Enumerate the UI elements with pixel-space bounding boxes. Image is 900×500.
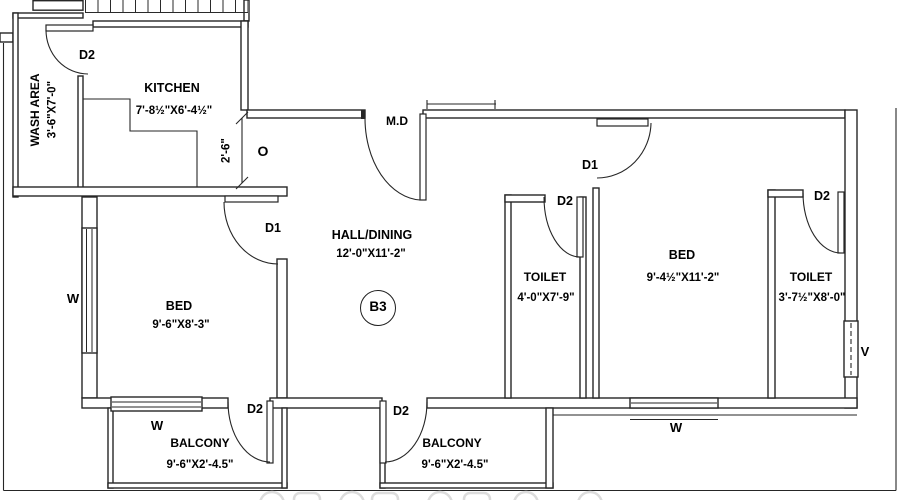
top-left-box — [33, 1, 83, 11]
window-balcony-left — [111, 397, 202, 411]
balcony-right-dims: 9'-6"X2'-4.5" — [375, 459, 535, 472]
watermark-shape — [260, 492, 284, 500]
watermark-shape — [294, 493, 320, 500]
wash-area-dims: 3'-6"X7'-0" — [46, 50, 59, 170]
bed-left-dims: 9'-6"X8'-3" — [101, 319, 261, 332]
main-door-label: M.D — [377, 115, 417, 129]
window-marker-bed-left: W — [58, 292, 88, 307]
door-label-d2-balcony-left: D2 — [240, 402, 270, 416]
door-leaf-bed-left — [225, 196, 278, 202]
watermark-shape — [514, 492, 538, 500]
bed-right-dims: 9'-4½"X11'-2" — [603, 272, 763, 285]
balcony-left-dims: 9'-6"X2'-4.5" — [120, 459, 280, 472]
door-jamb — [361, 110, 365, 119]
floor-plan: WASH AREA 3'-6"X7'-0" KITCHEN 7'-8½"X6'-… — [0, 0, 900, 500]
ventilator-marker: V — [852, 345, 878, 360]
wash-area-label: WASH AREA — [29, 50, 43, 170]
bed-right-label: BED — [622, 248, 742, 262]
wall-segment — [505, 195, 545, 202]
wall-segment — [78, 76, 83, 191]
door-label-d1-bed-right: D1 — [575, 158, 605, 172]
watermark-strip — [260, 492, 602, 500]
stair-hatch-band — [85, 0, 248, 13]
wall-segment — [108, 408, 113, 488]
watermark-shape — [464, 493, 490, 500]
door-arc-main — [365, 118, 420, 200]
window-marker-balcony-left: W — [142, 419, 172, 434]
balcony-left-label: BALCONY — [140, 437, 260, 451]
door-arc-bed-right — [597, 123, 651, 178]
door-label-d1-bed-left: D1 — [258, 221, 288, 235]
balcony-right-label: BALCONY — [392, 437, 512, 451]
property-boundary — [0, 0, 896, 491]
door-label-d2-toilet-right: D2 — [807, 189, 837, 203]
wall-segment — [13, 13, 18, 197]
watermark-shape — [428, 492, 452, 500]
wall-segment — [270, 398, 382, 408]
toilet-mid-dims: 4'-0"X7'-9" — [476, 292, 616, 305]
hall-label: HALL/DINING — [292, 228, 452, 242]
bed-left-label: BED — [119, 299, 239, 313]
wall-segment — [546, 408, 553, 488]
wall-segment — [108, 483, 287, 488]
toilet-mid-label: TOILET — [485, 271, 605, 285]
boundary-stub — [0, 33, 13, 42]
window-bed-left — [82, 228, 97, 353]
door-label-d2-toilet-mid: D2 — [550, 194, 580, 208]
door-leaf-wash — [46, 25, 93, 31]
opening-marker: O — [250, 143, 276, 159]
door-label-d2-wash: D2 — [72, 48, 102, 62]
door-leaf-toilet-right — [838, 192, 844, 253]
toilet-right-dims: 3'-7½"X8'-0" — [742, 292, 882, 305]
wall-segment — [380, 483, 553, 488]
hall-dims: 12'-0"X11'-2" — [291, 248, 451, 261]
watermark-shape — [340, 492, 364, 500]
kitchen-label: KITCHEN — [102, 81, 242, 95]
window-marker-bed-right: W — [661, 421, 691, 436]
toilet-right-label: TOILET — [751, 271, 871, 285]
wall-segment — [282, 408, 287, 488]
wall-segment — [13, 13, 83, 18]
wall-segment — [93, 21, 248, 27]
wall-segment — [423, 110, 845, 118]
door-label-d2-balcony-right: D2 — [386, 404, 416, 418]
opening-dimension-label: 2'-6" — [220, 116, 233, 186]
wall-segment — [247, 110, 365, 118]
wall-segment — [13, 187, 287, 196]
wall-segment — [241, 21, 248, 110]
door-leaf-main — [420, 114, 426, 200]
opening-dimension — [236, 112, 248, 189]
wall-segment — [768, 190, 803, 197]
watermark-shape — [372, 493, 398, 500]
wall-segment — [277, 259, 287, 398]
watermark-shape — [578, 492, 602, 500]
door-leaf-bed-right — [597, 119, 648, 126]
unit-badge: B3 — [360, 290, 396, 326]
